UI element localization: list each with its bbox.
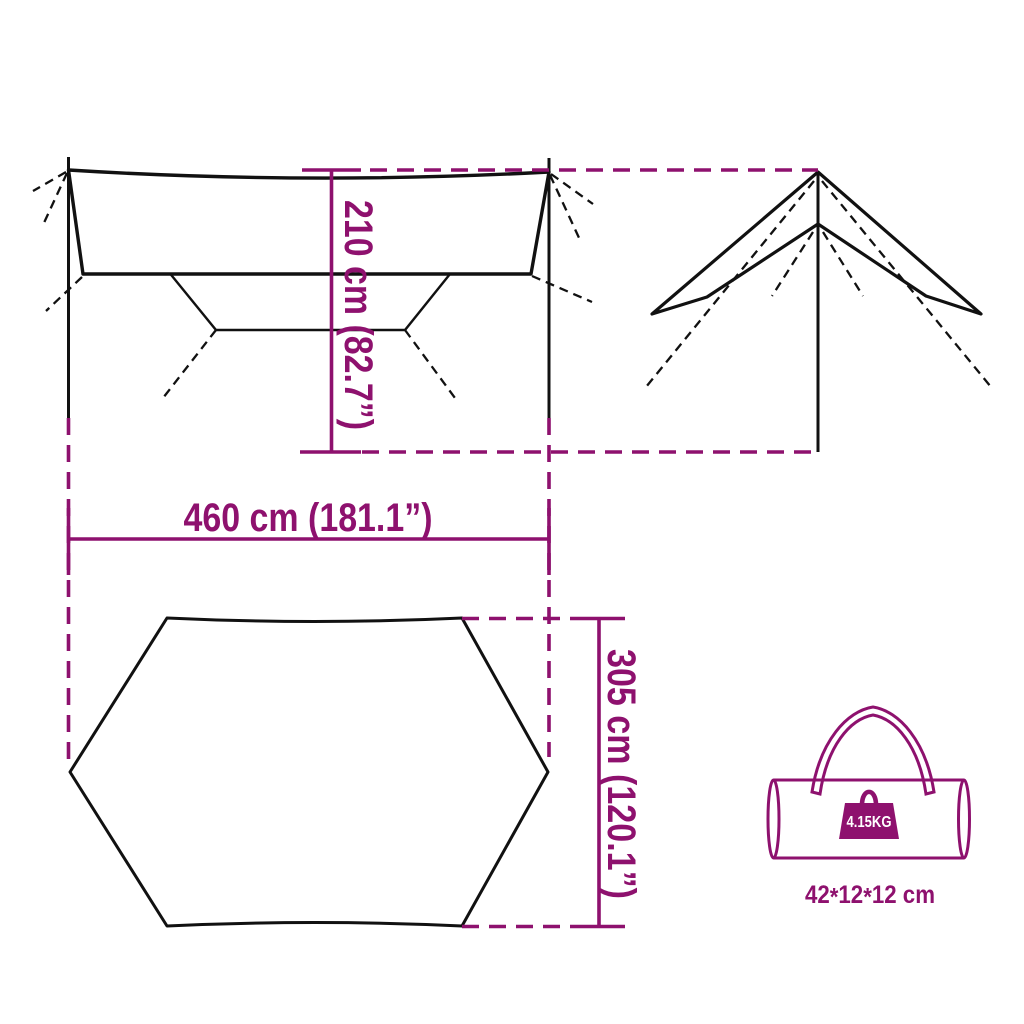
svg-text:460 cm (181.1”): 460 cm (181.1”) [184,496,433,540]
svg-text:42*12*12 cm: 42*12*12 cm [805,881,935,912]
svg-text:210 cm (82.7”): 210 cm (82.7”) [336,200,380,430]
svg-text:4.15KG: 4.15KG [847,814,892,831]
svg-text:305 cm (120.1”): 305 cm (120.1”) [599,649,643,899]
